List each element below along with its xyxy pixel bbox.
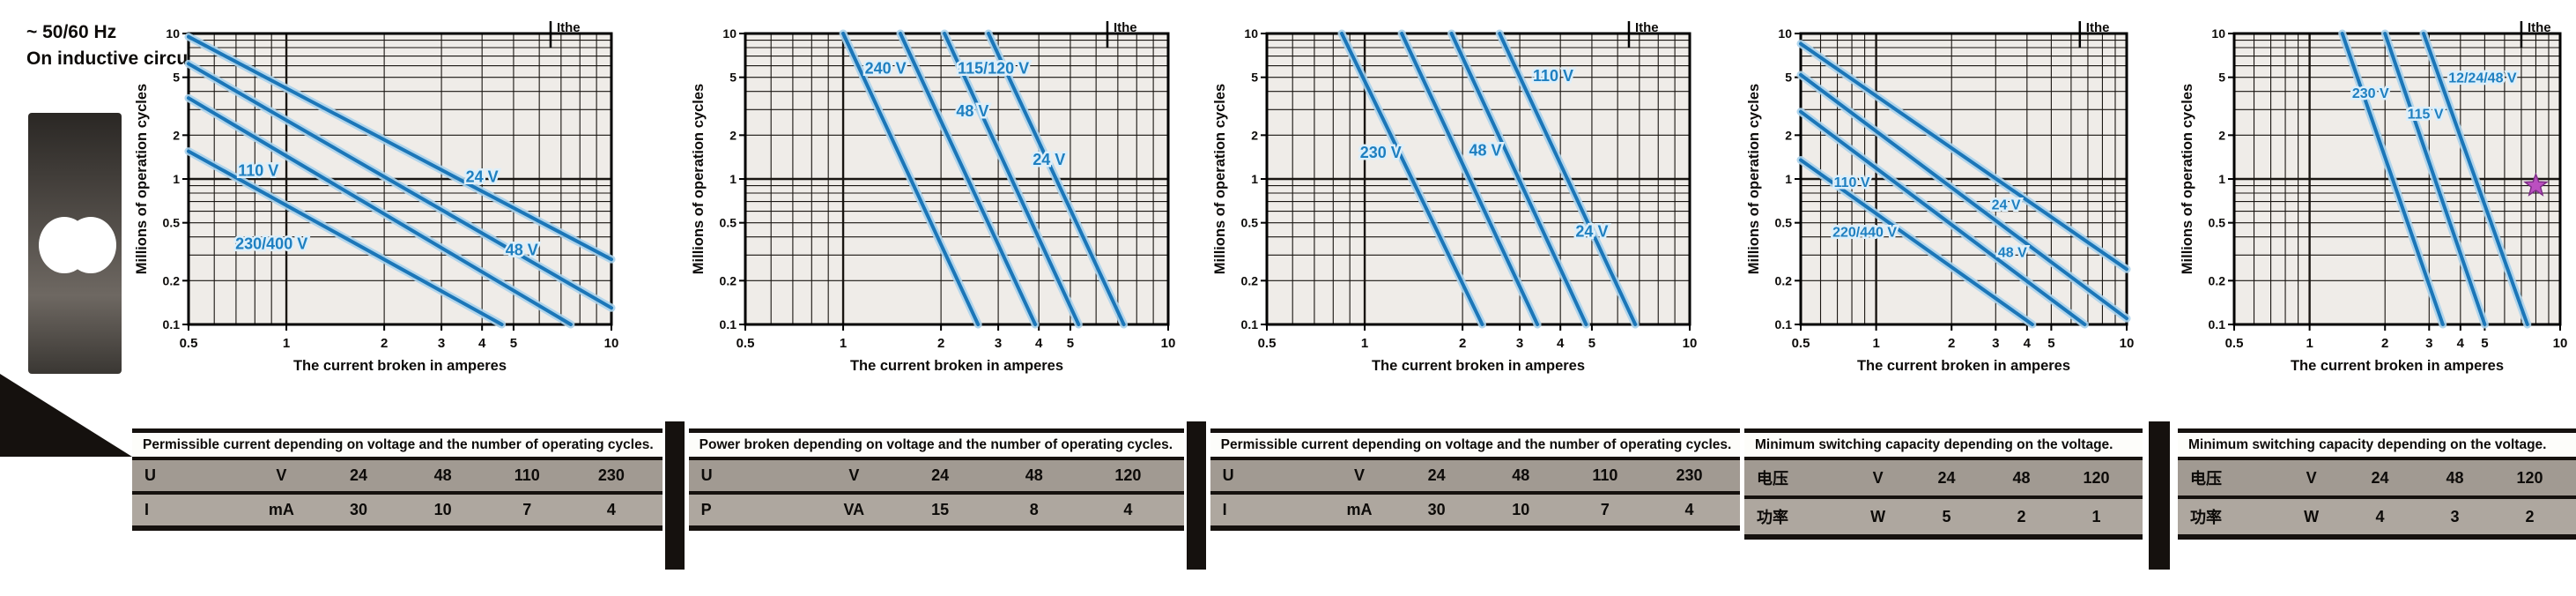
row-unit: VA — [815, 501, 893, 519]
ac-durability-chart-1: 0.51234510105210.50.20.124 V48 V110 V230… — [132, 7, 627, 383]
x-tick-label: 0.5 — [1257, 336, 1276, 351]
x-tick-label: 10 — [2553, 336, 2568, 351]
table-row: ImA301074 — [132, 495, 663, 525]
y-tick-label: 5 — [1251, 71, 1258, 85]
y-tick-label: 0.5 — [1240, 216, 1258, 230]
x-tick-label: 5 — [2047, 336, 2054, 351]
row-value: 48 — [1984, 469, 2059, 488]
y-tick-label: 10 — [2211, 26, 2225, 41]
decorative-wedge — [0, 374, 132, 457]
x-axis-caption: The current broken in amperes — [293, 358, 507, 374]
x-tick-label: 1 — [840, 336, 847, 351]
x-tick-label: 3 — [1516, 336, 1523, 351]
x-tick-label: 3 — [438, 336, 445, 351]
x-tick-label: 2 — [1948, 336, 1955, 351]
ac-charts-panel: 0.51234510105210.50.20.124 V48 V110 V230… — [132, 7, 1740, 531]
row-value: 120 — [2492, 469, 2567, 488]
ac-durability-chart-3: 0.51234510105210.50.20.1230 V110 V48 V24… — [1210, 7, 1706, 383]
row-value: 110 — [1563, 466, 1647, 485]
y-tick-label: 1 — [1251, 172, 1258, 186]
x-tick-label: 4 — [1557, 336, 1565, 351]
curve-label-110-V: 110 V — [238, 162, 278, 180]
table-row: ImA301074 — [1210, 495, 1741, 525]
curve-label-230-400-V: 230/400 V — [235, 235, 307, 252]
y-tick-label: 0.1 — [2209, 317, 2226, 332]
curve-label-24-V: 24 V — [1575, 223, 1608, 241]
row-unit: W — [1847, 508, 1909, 526]
row-value: 48 — [401, 466, 485, 485]
chart-column-1: 0.51234510105210.50.20.124 V48 V110 V230… — [132, 7, 663, 531]
curve-label-24-V: 24 V — [1033, 151, 1065, 168]
row-unit: W — [2280, 508, 2343, 526]
row-value: 110 — [485, 466, 569, 485]
datasheet-page: ~ 50/60 Hz On inductive circuit 0.512345… — [0, 0, 2576, 596]
x-tick-label: 3 — [995, 336, 1002, 351]
x-tick-label: 10 — [2120, 336, 2135, 351]
curve-label-12-24-48-V: 12/24/48 V — [2448, 71, 2517, 86]
y-tick-label: 2 — [1785, 128, 1792, 142]
x-tick-label: 0.5 — [180, 336, 198, 351]
x-tick-label: 4 — [2024, 336, 2032, 351]
product-highlight-circle — [65, 217, 116, 273]
x-tick-label: 10 — [1682, 336, 1697, 351]
chart-column-2: 0.51234510105210.50.20.1240 V115/120 V48… — [689, 7, 1184, 531]
x-tick-label: 1 — [1361, 336, 1368, 351]
y-tick-label: 0.1 — [1775, 317, 1793, 332]
row-label: I — [1219, 501, 1325, 519]
table-row: 电压V2448120 — [1744, 460, 2143, 499]
row-value: 4 — [1647, 501, 1732, 519]
curve-label-48-V: 48 V — [506, 241, 538, 258]
x-tick-label: 1 — [1872, 336, 1879, 351]
y-tick-label: 1 — [2218, 172, 2225, 186]
x-tick-label: 4 — [2457, 336, 2465, 351]
row-value: 1 — [2059, 508, 2134, 526]
row-value: 230 — [569, 466, 654, 485]
row-label: I — [141, 501, 247, 519]
row-value: 10 — [1478, 501, 1563, 519]
y-tick-label: 0.2 — [1775, 273, 1793, 287]
ithe-label: Ithe — [2086, 20, 2110, 35]
chart-column-3: 0.51234510105210.50.20.1230 V110 V48 V24… — [1210, 7, 1741, 531]
x-tick-label: 0.5 — [736, 336, 754, 351]
ac-durability-chart-2: 0.51234510105210.50.20.1240 V115/120 V48… — [689, 7, 1184, 383]
y-axis-label: Millions of operation cycles — [1746, 84, 1762, 274]
x-tick-label: 2 — [937, 336, 944, 351]
y-tick-label: 0.2 — [163, 273, 181, 287]
table-header: Minimum switching capacity depending on … — [1744, 433, 2143, 460]
x-tick-label: 5 — [510, 336, 517, 351]
table-header: Permissible current depending on voltage… — [1210, 433, 1741, 460]
row-value: 4 — [1081, 501, 1175, 519]
row-unit: V — [2280, 469, 2343, 488]
y-tick-label: 0.1 — [1240, 317, 1258, 332]
chart-column-5: 0.51234510105210.50.20.1230 V115 V12/24/… — [2178, 7, 2576, 540]
row-value: 24 — [1395, 466, 1479, 485]
y-tick-label: 0.1 — [163, 317, 181, 332]
chart-column-4: 0.51234510105210.50.20.124 V48 V110 V220… — [1744, 7, 2143, 540]
row-value: 48 — [1478, 466, 1563, 485]
x-tick-label: 5 — [1588, 336, 1595, 351]
x-tick-label: 0.5 — [2225, 336, 2244, 351]
y-tick-label: 2 — [2218, 128, 2225, 142]
x-tick-label: 2 — [381, 336, 388, 351]
row-value: 120 — [2059, 469, 2134, 488]
x-tick-label: 0.5 — [1792, 336, 1810, 351]
row-value: 4 — [569, 501, 654, 519]
row-unit: V — [1847, 469, 1909, 488]
x-tick-label: 10 — [1160, 336, 1175, 351]
curve-label-115-V: 115 V — [2408, 108, 2444, 123]
table-row: UV2448110230 — [1210, 460, 1741, 495]
row-value: 30 — [316, 501, 401, 519]
parameter-table-3: Permissible current depending on voltage… — [1210, 428, 1741, 531]
y-tick-label: 0.5 — [163, 216, 181, 230]
x-tick-label: 2 — [1459, 336, 1466, 351]
y-tick-label: 1 — [1785, 172, 1792, 186]
row-unit: V — [247, 466, 317, 485]
row-unit: V — [815, 466, 893, 485]
x-tick-label: 2 — [2381, 336, 2388, 351]
ithe-label: Ithe — [1635, 20, 1659, 35]
table-row: 电压V2448120 — [2178, 460, 2576, 499]
y-tick-label: 5 — [2218, 71, 2225, 85]
y-tick-label: 10 — [166, 26, 180, 41]
row-label: U — [1219, 466, 1325, 485]
row-label: 电压 — [2187, 466, 2280, 489]
y-tick-label: 0.2 — [1240, 273, 1258, 287]
row-label: U — [141, 466, 247, 485]
y-tick-label: 5 — [729, 71, 737, 85]
row-value: 10 — [401, 501, 485, 519]
table-row: UV2448120 — [689, 460, 1184, 495]
curve-label-48-V: 48 V — [1469, 141, 1501, 159]
parameter-table-1: Permissible current depending on voltage… — [132, 428, 663, 531]
curve-label-24-V: 24 V — [466, 168, 499, 186]
row-value: 15 — [893, 501, 988, 519]
row-value: 24 — [893, 466, 988, 485]
table-row: UV2448110230 — [132, 460, 663, 495]
y-tick-label: 1 — [173, 172, 180, 186]
row-value: 7 — [485, 501, 569, 519]
row-unit: V — [1324, 466, 1395, 485]
table-row: PVA1584 — [689, 495, 1184, 525]
y-axis-label: Millions of operation cycles — [1212, 84, 1228, 274]
row-unit: mA — [1324, 501, 1395, 519]
x-tick-label: 4 — [478, 336, 486, 351]
x-tick-label: 1 — [283, 336, 290, 351]
x-tick-label: 10 — [604, 336, 619, 351]
x-tick-label: 1 — [2306, 336, 2313, 351]
product-image-placeholder — [28, 113, 122, 374]
x-tick-label: 5 — [2481, 336, 2488, 351]
row-value: 2 — [1984, 508, 2059, 526]
y-axis-label: Millions of operation cycles — [691, 84, 707, 274]
row-value: 7 — [1563, 501, 1647, 519]
row-value: 24 — [316, 466, 401, 485]
row-label: 功率 — [2187, 505, 2280, 528]
y-tick-label: 5 — [173, 71, 180, 85]
row-value: 8 — [987, 501, 1081, 519]
row-value: 120 — [1081, 466, 1175, 485]
ithe-label: Ithe — [2528, 20, 2551, 35]
y-tick-label: 2 — [729, 128, 737, 142]
row-unit: mA — [247, 501, 317, 519]
table-header: Minimum switching capacity depending on … — [2178, 433, 2576, 460]
row-label: 功率 — [1753, 505, 1847, 528]
row-value: 3 — [2417, 508, 2492, 526]
row-value: 30 — [1395, 501, 1479, 519]
x-axis-caption: The current broken in amperes — [1372, 358, 1585, 374]
curve-label-240-V: 240 V — [864, 59, 906, 77]
y-tick-label: 0.2 — [719, 273, 737, 287]
parameter-table-4: Minimum switching capacity depending on … — [1744, 428, 2143, 540]
dc-durability-chart-2: 0.51234510105210.50.20.1230 V115 V12/24/… — [2178, 7, 2576, 383]
x-axis-caption: The current broken in amperes — [2291, 358, 2504, 374]
x-axis-caption: The current broken in amperes — [1857, 358, 2070, 374]
y-tick-label: 0.5 — [719, 216, 737, 230]
dc-charts-panel: 0.51234510105210.50.20.124 V48 V110 V220… — [1744, 7, 2576, 540]
row-value: 230 — [1647, 466, 1732, 485]
y-tick-label: 2 — [1251, 128, 1258, 142]
x-axis-caption: The current broken in amperes — [850, 358, 1063, 374]
curve-label-230-V: 230 V — [2352, 86, 2389, 101]
row-label: P — [698, 501, 815, 519]
parameter-table-2: Power broken depending on voltage and th… — [689, 428, 1184, 531]
row-label: U — [698, 466, 815, 485]
curve-label-230-V: 230 V — [1359, 144, 1401, 161]
row-value: 48 — [2417, 469, 2492, 488]
row-label: 电压 — [1753, 466, 1847, 489]
x-tick-label: 4 — [1035, 336, 1043, 351]
y-tick-label: 2 — [173, 128, 180, 142]
dc-durability-chart-1: 0.51234510105210.50.20.124 V48 V110 V220… — [1744, 7, 2143, 383]
y-tick-label: 10 — [1778, 26, 1792, 41]
table-header: Permissible current depending on voltage… — [132, 433, 663, 460]
curve-label-110-V: 110 V — [1533, 67, 1573, 85]
y-tick-label: 5 — [1785, 71, 1792, 85]
curve-label-115-120-V: 115/120 V — [958, 59, 1029, 77]
x-tick-label: 3 — [2425, 336, 2432, 351]
y-axis-label: Millions of operation cycles — [2180, 84, 2195, 274]
ithe-label: Ithe — [1114, 20, 1137, 35]
y-tick-label: 10 — [722, 26, 737, 41]
curve-label-220-440-V: 220/440 V — [1832, 226, 1897, 241]
x-tick-label: 3 — [1992, 336, 1999, 351]
row-value: 5 — [1909, 508, 1984, 526]
parameter-table-5: Minimum switching capacity depending on … — [2178, 428, 2576, 540]
row-value: 24 — [1909, 469, 1984, 488]
curve-label-48-V: 48 V — [956, 102, 988, 120]
curve-label-48-V: 48 V — [1998, 246, 2027, 261]
ithe-label: Ithe — [557, 20, 581, 35]
y-tick-label: 0.5 — [2209, 216, 2226, 230]
y-tick-label: 0.1 — [719, 317, 737, 332]
table-header: Power broken depending on voltage and th… — [689, 433, 1184, 460]
x-tick-label: 5 — [1066, 336, 1073, 351]
y-axis-label: Millions of operation cycles — [134, 84, 150, 274]
y-tick-label: 0.2 — [2209, 273, 2226, 287]
y-tick-label: 1 — [729, 172, 737, 186]
row-value: 48 — [987, 466, 1081, 485]
curve-label-110-V: 110 V — [1834, 175, 1870, 190]
table-row: 功率W432 — [2178, 499, 2576, 534]
row-value: 2 — [2492, 508, 2567, 526]
table-row: 功率W521 — [1744, 499, 2143, 534]
y-tick-label: 10 — [1244, 26, 1258, 41]
y-tick-label: 0.5 — [1775, 216, 1793, 230]
curve-label-24-V: 24 V — [1992, 197, 2021, 212]
row-value: 24 — [2343, 469, 2417, 488]
row-value: 4 — [2343, 508, 2417, 526]
